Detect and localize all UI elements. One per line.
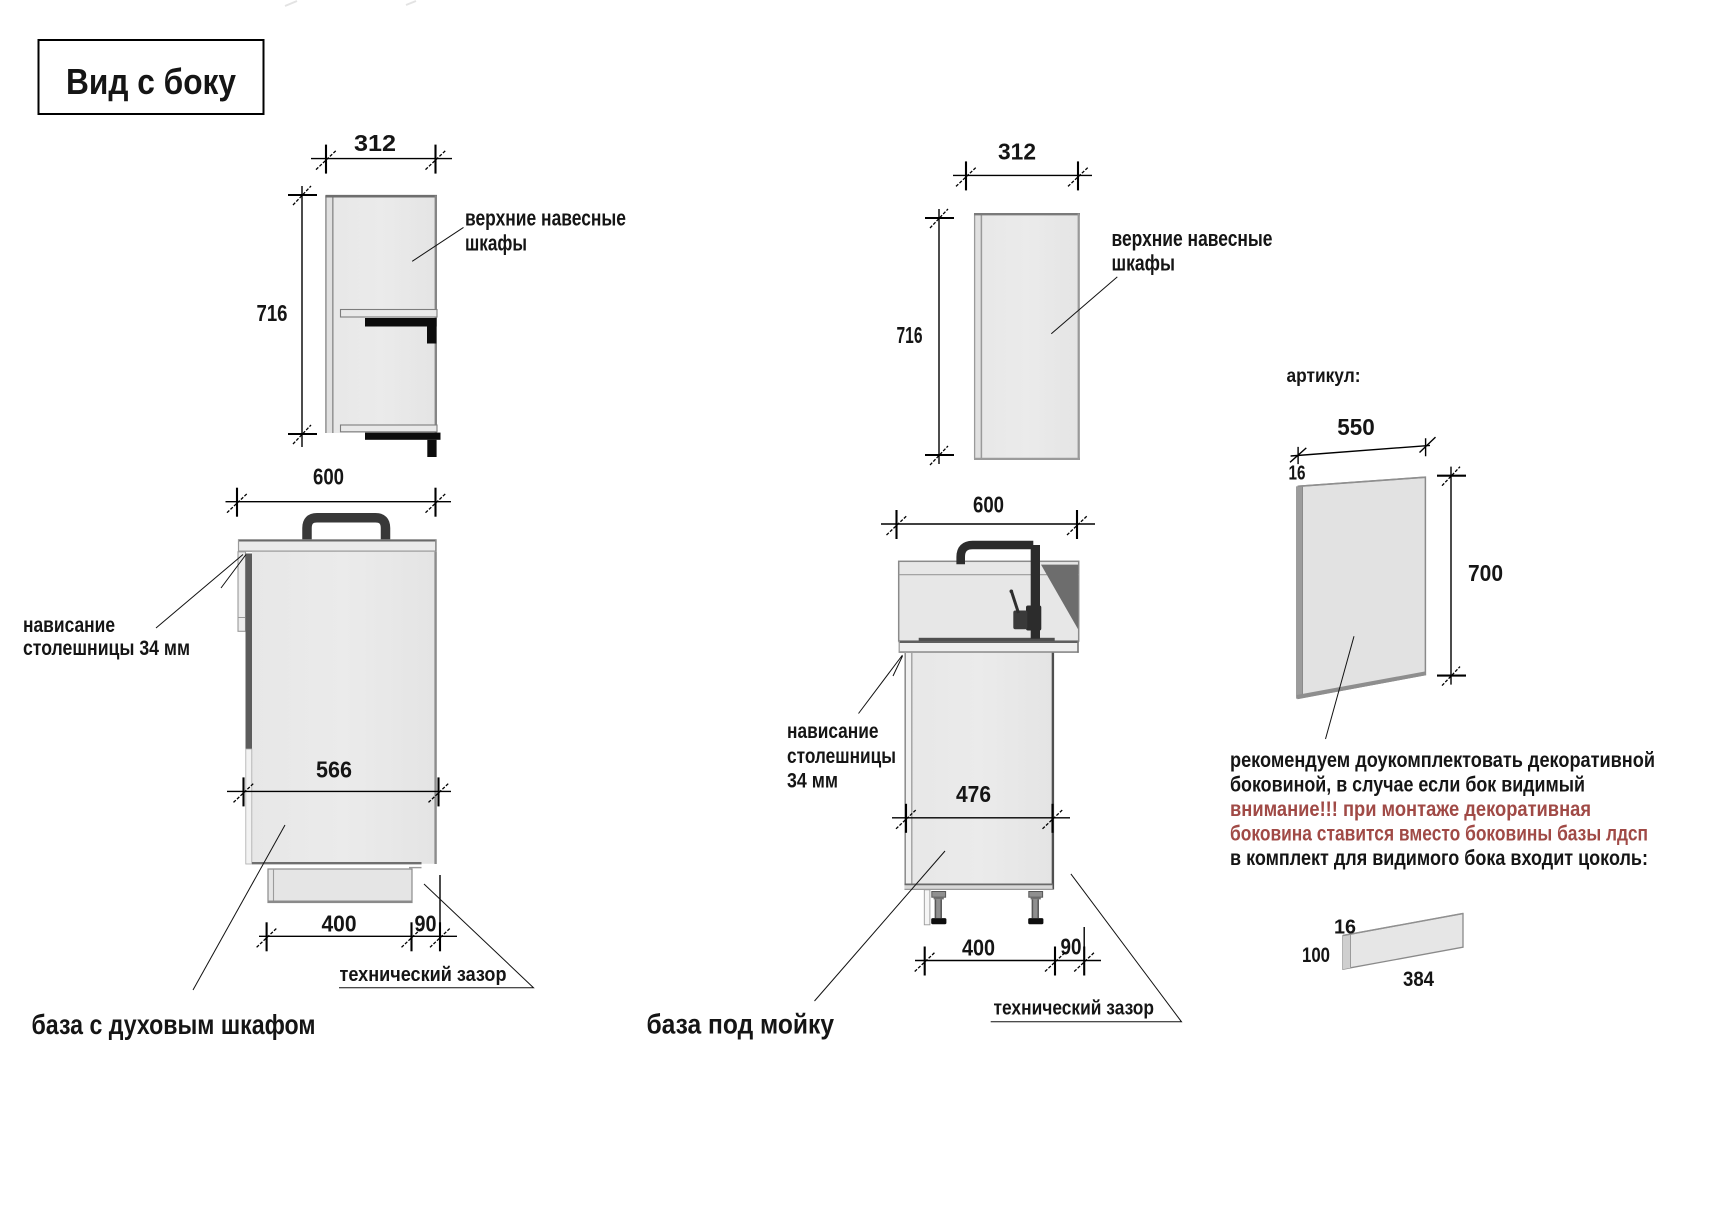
- svg-text:в комплект для видимого бока в: в комплект для видимого бока входит цоко…: [1230, 846, 1648, 870]
- svg-text:боковиной, в случае если бок в: боковиной, в случае если бок видимый: [1230, 773, 1585, 797]
- svg-text:400: 400: [322, 911, 357, 937]
- svg-text:шкафы: шкафы: [465, 231, 527, 256]
- svg-text:550: 550: [1337, 414, 1375, 440]
- svg-text:476: 476: [956, 781, 991, 807]
- svg-text:312: 312: [998, 139, 1036, 165]
- svg-text:600: 600: [973, 492, 1004, 518]
- svg-text:технический зазор: технический зазор: [340, 963, 507, 986]
- svg-text:верхние навесные: верхние навесные: [1112, 226, 1273, 251]
- svg-text:16: 16: [1334, 917, 1356, 939]
- svg-text:база под мойку: база под мойку: [647, 1009, 835, 1040]
- svg-text:верхние навесные: верхние навесные: [465, 206, 626, 231]
- svg-text:700: 700: [1468, 560, 1503, 586]
- svg-text:384: 384: [1403, 968, 1434, 991]
- svg-text:312: 312: [354, 130, 396, 156]
- svg-text:100: 100: [1302, 944, 1330, 967]
- svg-text:90: 90: [1061, 934, 1082, 960]
- svg-text:600: 600: [313, 464, 344, 490]
- svg-text:боковина ставится вместо боков: боковина ставится вместо боковины базы л…: [1230, 822, 1648, 846]
- svg-text:нависание: нависание: [787, 720, 879, 743]
- svg-text:база с духовым шкафом: база с духовым шкафом: [32, 1009, 316, 1040]
- svg-text:технический зазор: технический зазор: [994, 997, 1155, 1020]
- svg-text:716: 716: [257, 300, 288, 326]
- svg-text:артикул:: артикул:: [1287, 366, 1361, 387]
- svg-text:рекомендуем доукомплектовать д: рекомендуем доукомплектовать декоративно…: [1230, 748, 1655, 772]
- svg-text:716: 716: [897, 322, 923, 348]
- svg-text:внимание!!! при монтаже декора: внимание!!! при монтаже декоративная: [1230, 797, 1591, 821]
- svg-text:столешницы 34 мм: столешницы 34 мм: [23, 637, 190, 660]
- svg-text:16: 16: [1289, 463, 1306, 485]
- svg-text:400: 400: [962, 935, 995, 961]
- svg-text:нависание: нависание: [23, 614, 115, 637]
- svg-text:шкафы: шкафы: [1112, 251, 1176, 276]
- svg-text:Вид с боку: Вид с боку: [66, 61, 236, 102]
- svg-text:566: 566: [316, 757, 352, 783]
- svg-text:34 мм: 34 мм: [787, 770, 838, 793]
- svg-text:столешницы: столешницы: [787, 745, 896, 768]
